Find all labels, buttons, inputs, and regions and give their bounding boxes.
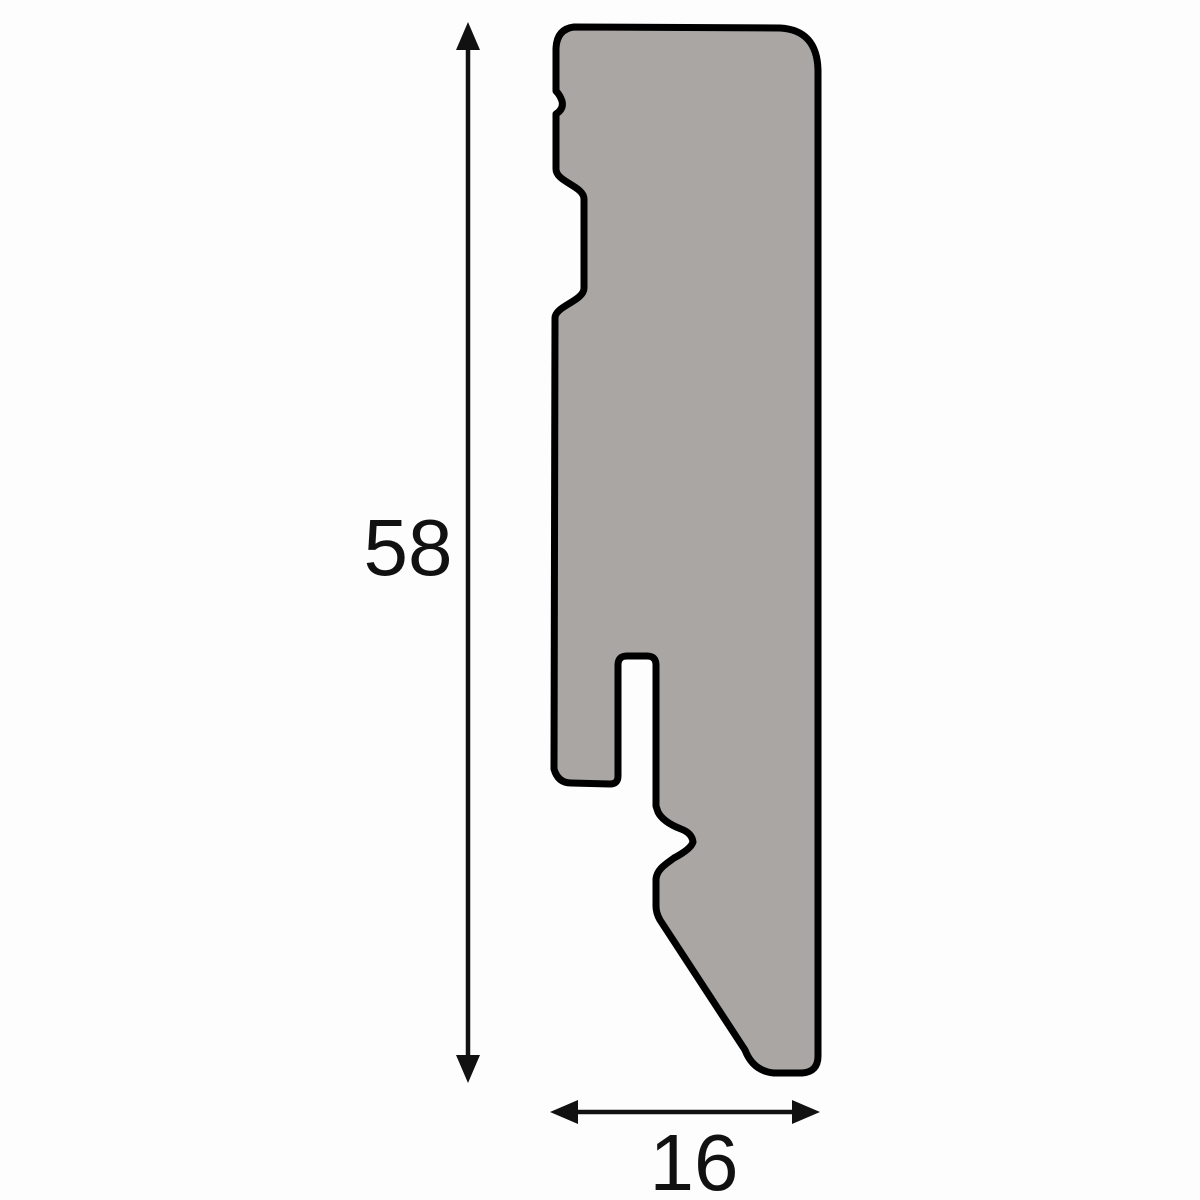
- arrow-down-icon: [456, 1055, 480, 1083]
- arrow-left-icon: [550, 1100, 578, 1124]
- profile-cross-section-shape: [554, 27, 818, 1073]
- height-dimension: 58: [364, 22, 480, 1083]
- height-dimension-label: 58: [364, 503, 453, 592]
- arrow-right-icon: [792, 1100, 820, 1124]
- width-dimension: 16: [550, 1100, 820, 1200]
- diagram-svg: 58 16: [0, 0, 1200, 1200]
- width-dimension-label: 16: [650, 1118, 739, 1200]
- profile-diagram: 58 16: [0, 0, 1200, 1200]
- profile-shape-group: [554, 27, 818, 1073]
- arrow-up-icon: [456, 22, 480, 50]
